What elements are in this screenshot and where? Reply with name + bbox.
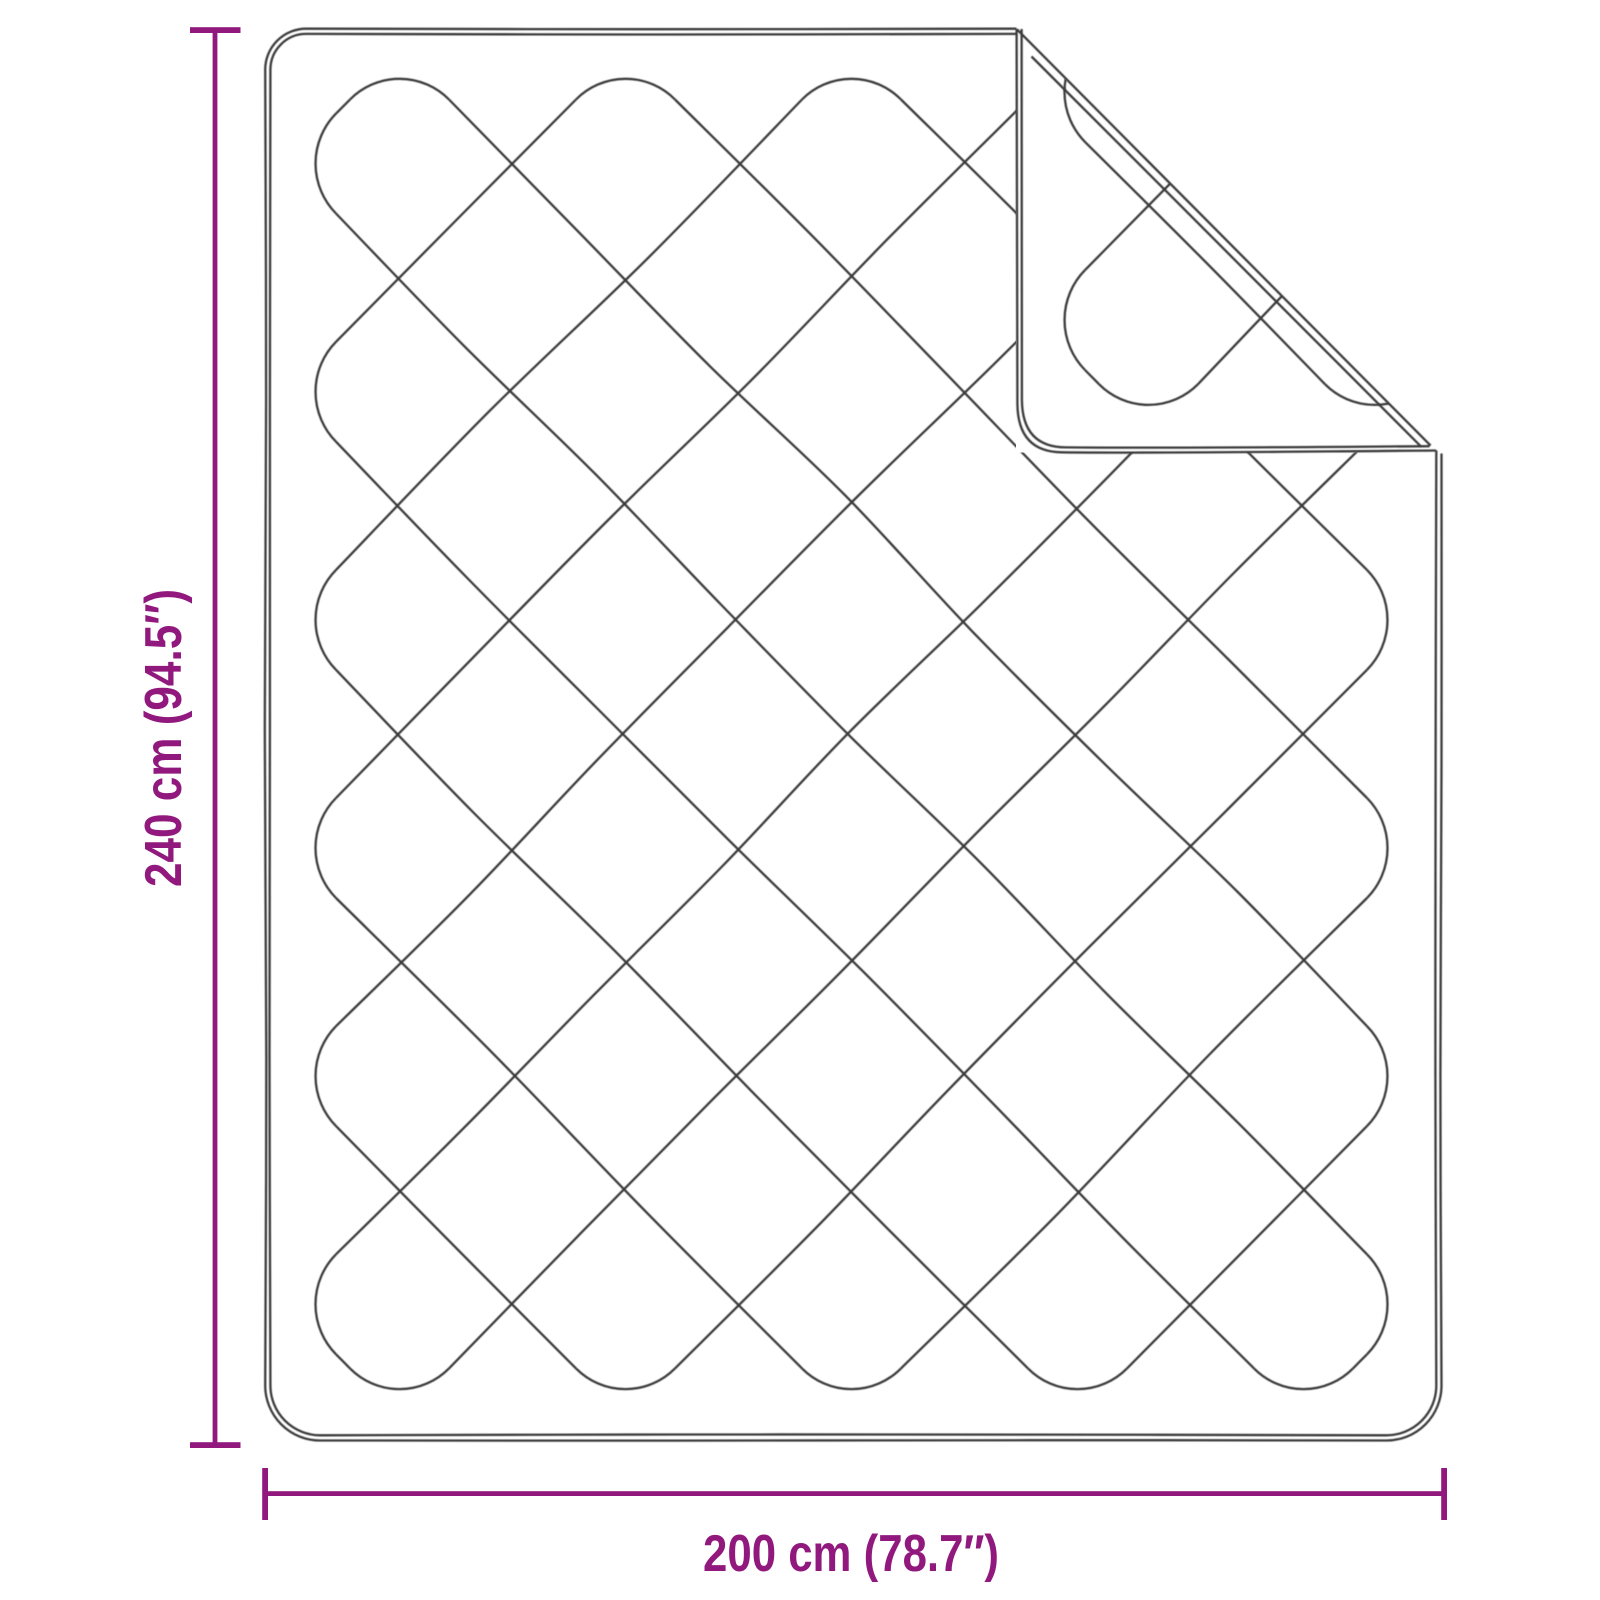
- svg-text:200 cm (78.7″): 200 cm (78.7″): [703, 1525, 999, 1583]
- svg-text:240 cm (94.5″): 240 cm (94.5″): [135, 589, 193, 887]
